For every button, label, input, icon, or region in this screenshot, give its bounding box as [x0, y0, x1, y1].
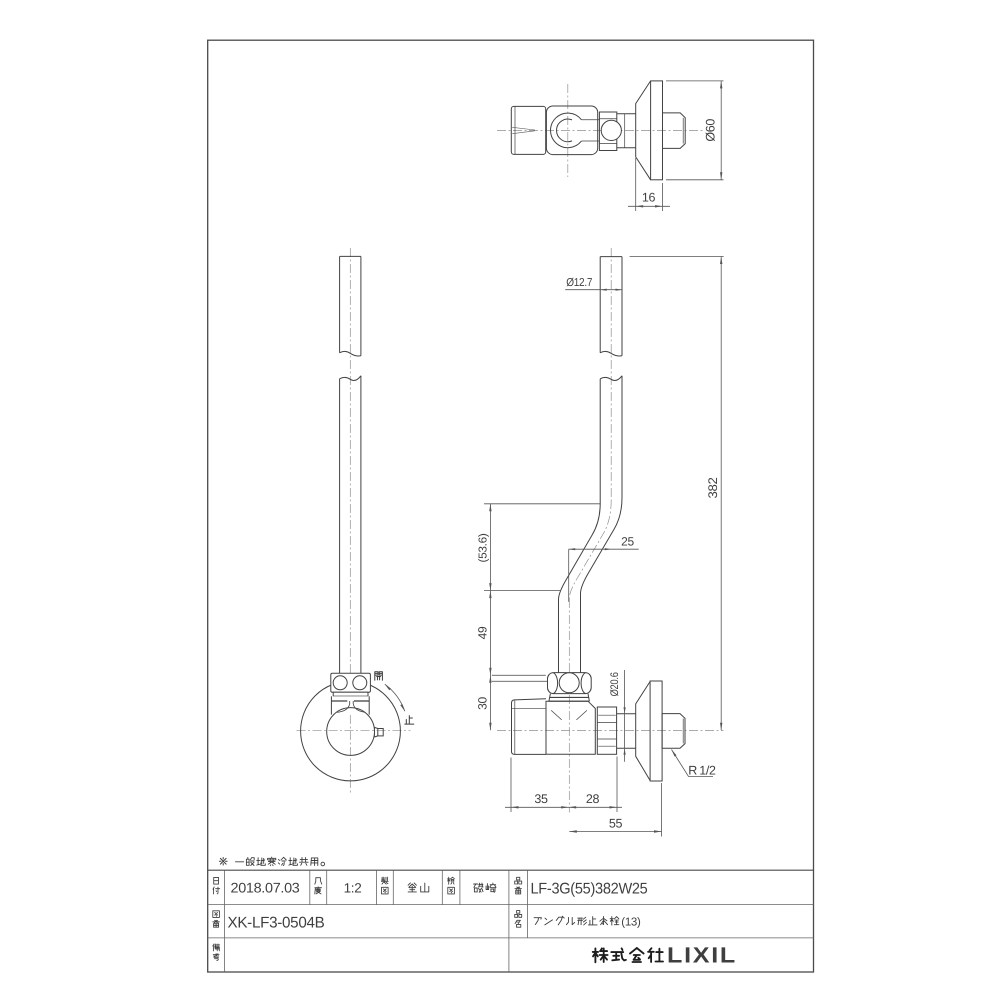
svg-text:382: 382 — [706, 477, 720, 498]
svg-text:LF-3G(55)382W25: LF-3G(55)382W25 — [531, 881, 648, 898]
svg-text:Ø60: Ø60 — [704, 119, 718, 142]
svg-text:55: 55 — [609, 816, 623, 830]
svg-text:1:2: 1:2 — [344, 881, 362, 896]
svg-text:49: 49 — [475, 626, 489, 639]
svg-text:25: 25 — [621, 534, 634, 548]
svg-text:Ø20.6: Ø20.6 — [609, 672, 621, 696]
svg-text:(13): (13) — [621, 916, 641, 928]
svg-text:R 1/2: R 1/2 — [688, 764, 716, 778]
svg-text:2018.07.03: 2018.07.03 — [231, 880, 301, 896]
svg-text:16: 16 — [642, 191, 656, 205]
svg-text:(53.6): (53.6) — [478, 533, 490, 562]
svg-text:LIXIL: LIXIL — [667, 943, 737, 968]
svg-text:Ø12.7: Ø12.7 — [566, 277, 592, 289]
svg-text:XK-LF3-0504B: XK-LF3-0504B — [228, 915, 325, 932]
svg-text:30: 30 — [475, 697, 489, 710]
svg-text:28: 28 — [586, 792, 600, 806]
svg-text:35: 35 — [534, 792, 548, 806]
